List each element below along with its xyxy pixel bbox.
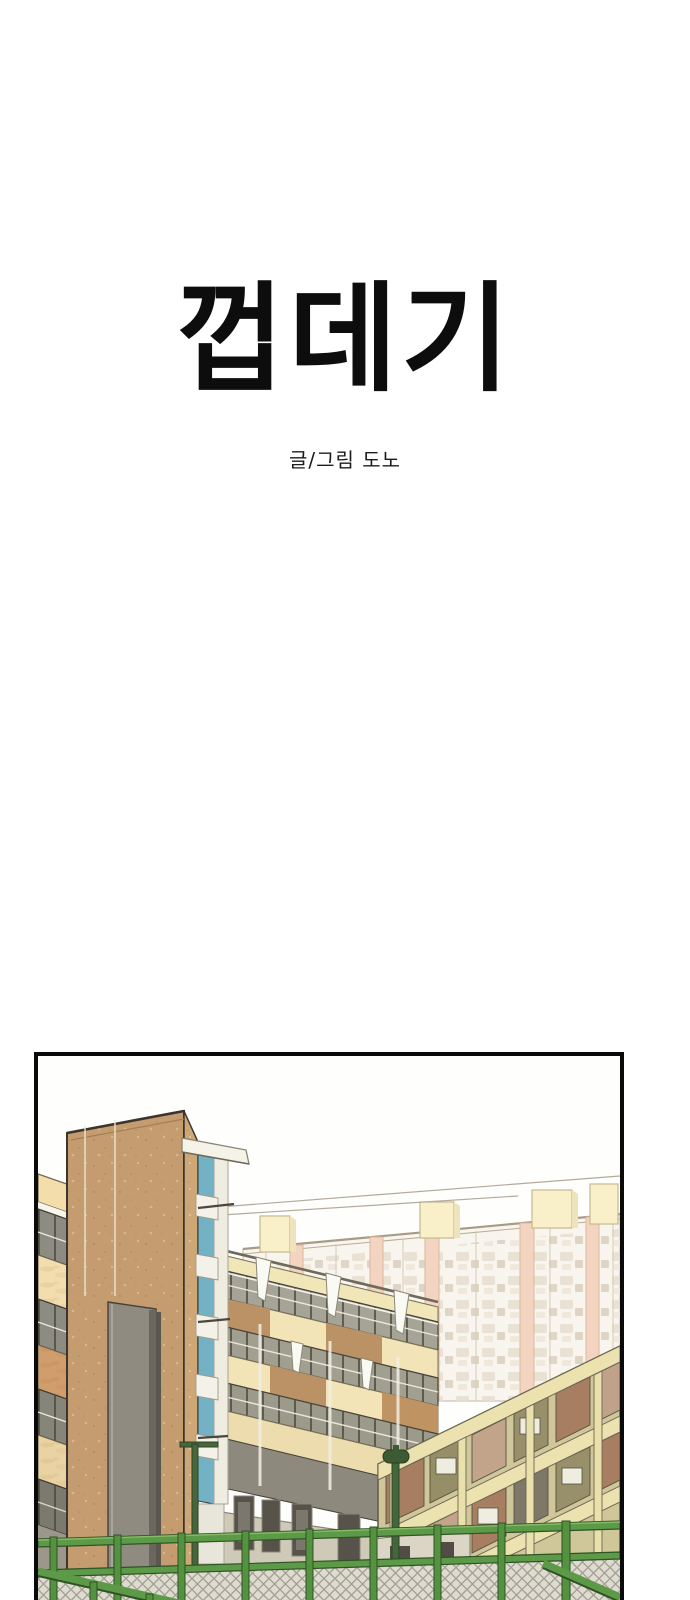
- comic-panel: [34, 1052, 624, 1600]
- page-title: 껍데기: [0, 278, 690, 402]
- byline: 글/그림 도노: [0, 444, 690, 473]
- school-courtyard-illustration: [38, 1056, 620, 1600]
- webtoon-page: 껍데기 글/그림 도노: [0, 0, 690, 1600]
